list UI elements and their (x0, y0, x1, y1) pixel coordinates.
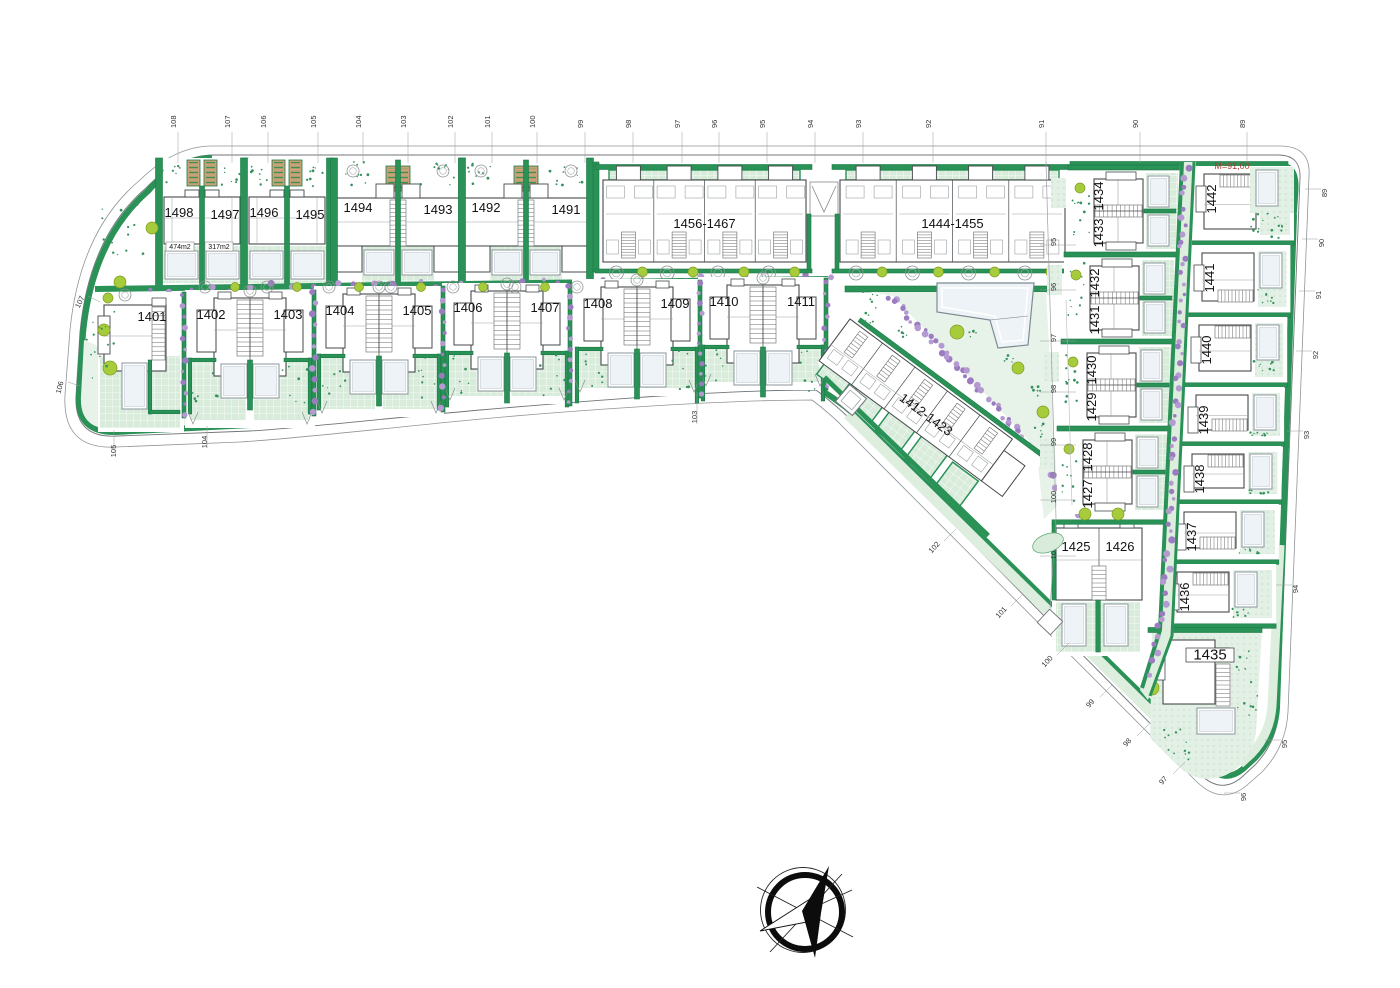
svg-text:96: 96 (1239, 793, 1248, 801)
svg-text:103: 103 (399, 115, 408, 128)
svg-text:317m2: 317m2 (208, 244, 230, 251)
svg-text:95: 95 (1049, 238, 1058, 246)
svg-text:97: 97 (1049, 334, 1058, 342)
svg-text:1427: 1427 (1080, 480, 1095, 509)
svg-text:89: 89 (1238, 120, 1247, 128)
svg-text:107: 107 (223, 115, 232, 128)
svg-text:1411: 1411 (787, 294, 815, 309)
svg-text:96: 96 (1049, 283, 1058, 291)
svg-text:91: 91 (1037, 120, 1046, 128)
svg-text:1426: 1426 (1106, 539, 1135, 554)
svg-text:97: 97 (673, 120, 682, 128)
svg-text:91: 91 (1314, 291, 1323, 299)
svg-text:96: 96 (710, 120, 719, 128)
svg-text:105: 105 (109, 445, 118, 458)
svg-text:101: 101 (483, 115, 492, 128)
svg-text:93: 93 (1302, 431, 1311, 439)
svg-text:94: 94 (806, 120, 815, 128)
svg-text:92: 92 (924, 120, 933, 128)
svg-text:95: 95 (1280, 740, 1289, 748)
svg-text:99: 99 (1049, 438, 1058, 446)
svg-text:1494: 1494 (344, 200, 373, 215)
svg-text:102: 102 (446, 115, 455, 128)
svg-text:1408: 1408 (584, 296, 613, 311)
svg-text:474m2: 474m2 (169, 244, 191, 251)
svg-text:1437: 1437 (1184, 523, 1199, 552)
svg-text:1497: 1497 (211, 207, 240, 222)
svg-text:98: 98 (624, 120, 633, 128)
svg-text:1495: 1495 (296, 207, 325, 222)
svg-text:1435: 1435 (1193, 647, 1226, 664)
svg-text:104: 104 (200, 436, 209, 449)
svg-text:1493: 1493 (424, 202, 453, 217)
svg-text:1442: 1442 (1204, 185, 1219, 214)
svg-text:1434: 1434 (1091, 182, 1106, 211)
svg-text:90: 90 (1317, 239, 1326, 247)
svg-text:1403: 1403 (274, 307, 303, 322)
svg-text:1492: 1492 (472, 200, 501, 215)
svg-text:1407: 1407 (531, 300, 560, 315)
svg-text:1431: 1431 (1087, 306, 1102, 335)
svg-text:1425: 1425 (1062, 539, 1091, 554)
svg-text:94: 94 (1291, 585, 1300, 593)
svg-text:104: 104 (354, 115, 363, 128)
svg-text:93: 93 (854, 120, 863, 128)
svg-text:1441: 1441 (1202, 264, 1217, 293)
svg-text:98: 98 (1049, 385, 1058, 393)
svg-text:90: 90 (1131, 120, 1140, 128)
svg-text:1456-1467: 1456-1467 (673, 216, 735, 231)
svg-text:1404: 1404 (326, 303, 355, 318)
svg-text:1438: 1438 (1192, 465, 1207, 494)
svg-text:1406: 1406 (454, 300, 483, 315)
svg-text:103: 103 (690, 411, 699, 424)
svg-text:1491: 1491 (552, 202, 581, 217)
svg-text:108: 108 (169, 115, 178, 128)
svg-text:1433: 1433 (1091, 219, 1106, 248)
svg-text:1409: 1409 (661, 296, 690, 311)
svg-text:1496: 1496 (250, 205, 279, 220)
svg-text:1440: 1440 (1199, 336, 1214, 365)
svg-text:1402: 1402 (197, 307, 226, 322)
svg-text:1436: 1436 (1177, 583, 1192, 612)
svg-text:95: 95 (758, 120, 767, 128)
svg-text:89: 89 (1320, 189, 1329, 197)
svg-text:1429: 1429 (1084, 393, 1099, 422)
svg-text:1410: 1410 (710, 294, 739, 309)
svg-text:1428: 1428 (1080, 443, 1095, 472)
svg-text:106: 106 (259, 115, 268, 128)
svg-text:99: 99 (576, 120, 585, 128)
svg-text:M=91,00: M=91,00 (1214, 161, 1249, 171)
svg-text:1401: 1401 (138, 309, 167, 324)
svg-text:1498: 1498 (165, 205, 194, 220)
svg-text:1432: 1432 (1087, 269, 1102, 298)
svg-text:1444-1455: 1444-1455 (921, 216, 983, 231)
svg-text:100: 100 (528, 115, 537, 128)
svg-text:1405: 1405 (403, 303, 432, 318)
svg-text:92: 92 (1311, 351, 1320, 359)
svg-text:1439: 1439 (1196, 406, 1211, 435)
svg-text:105: 105 (309, 115, 318, 128)
svg-text:1430: 1430 (1084, 356, 1099, 385)
svg-text:100: 100 (1049, 491, 1058, 504)
